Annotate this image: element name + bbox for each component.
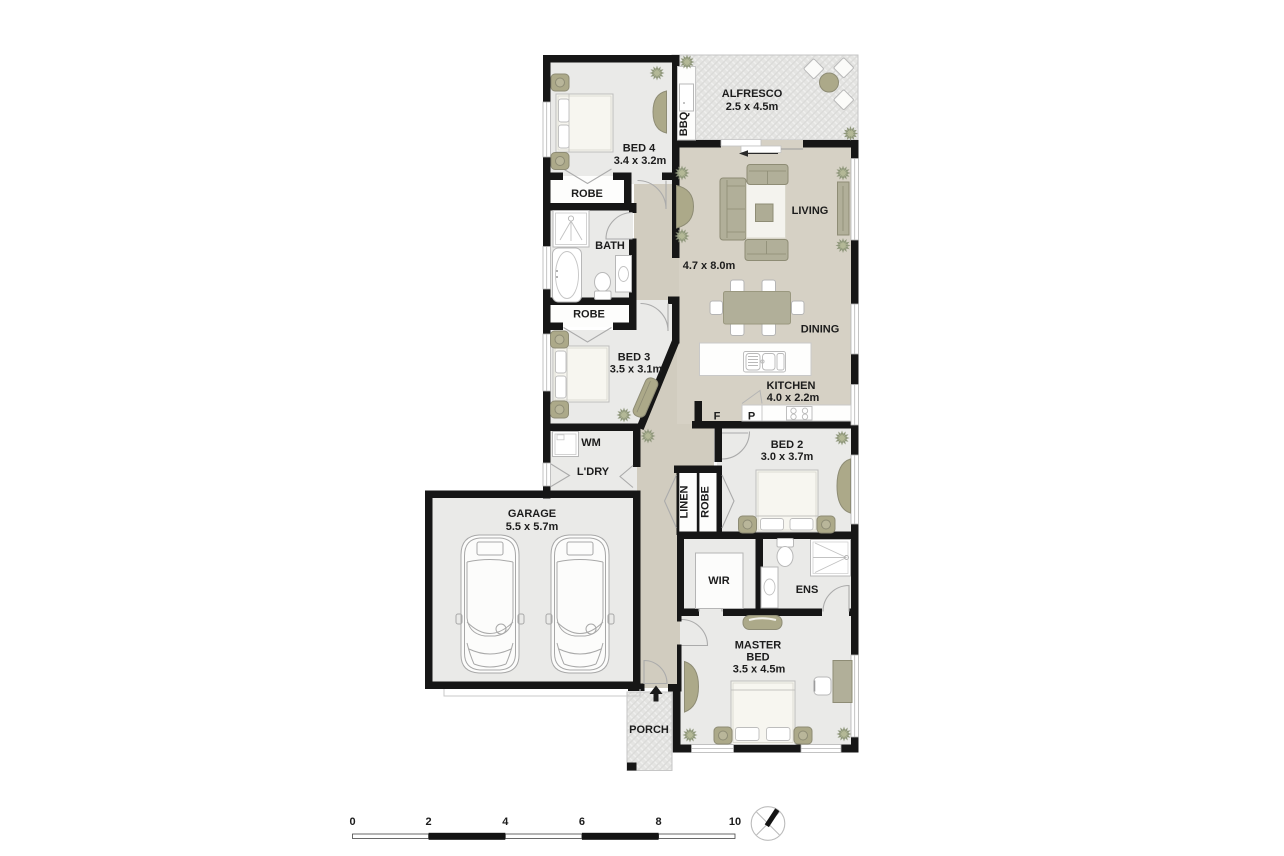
svg-text:PORCH: PORCH bbox=[629, 724, 669, 736]
svg-text:2: 2 bbox=[426, 816, 432, 828]
svg-text:F: F bbox=[714, 411, 721, 423]
svg-text:GARAGE: GARAGE bbox=[508, 508, 556, 520]
svg-text:KITCHEN: KITCHEN bbox=[767, 380, 816, 392]
svg-text:0: 0 bbox=[349, 816, 355, 828]
svg-text:WIR: WIR bbox=[708, 575, 729, 587]
svg-text:10: 10 bbox=[729, 816, 741, 828]
svg-text:4: 4 bbox=[502, 816, 509, 828]
svg-text:LIVING: LIVING bbox=[792, 205, 829, 217]
svg-text:MASTER: MASTER bbox=[735, 640, 782, 652]
svg-text:4.7 x 8.0m: 4.7 x 8.0m bbox=[683, 260, 736, 272]
svg-text:3.5 x 4.5m: 3.5 x 4.5m bbox=[733, 664, 786, 676]
svg-text:5.5 x 5.7m: 5.5 x 5.7m bbox=[506, 521, 559, 533]
svg-text:BED 2: BED 2 bbox=[771, 439, 803, 451]
svg-text:BBQ: BBQ bbox=[678, 111, 690, 136]
svg-text:8: 8 bbox=[656, 816, 662, 828]
svg-text:BED 4: BED 4 bbox=[623, 143, 656, 155]
svg-text:L'DRY: L'DRY bbox=[577, 466, 610, 478]
svg-text:BED: BED bbox=[746, 652, 769, 664]
svg-text:3.0 x 3.7m: 3.0 x 3.7m bbox=[761, 451, 814, 463]
svg-text:LINEN: LINEN bbox=[679, 485, 691, 518]
svg-text:3.4 x 3.2m: 3.4 x 3.2m bbox=[614, 155, 667, 167]
svg-text:6: 6 bbox=[579, 816, 585, 828]
svg-text:WM: WM bbox=[581, 437, 601, 449]
svg-text:ENS: ENS bbox=[796, 584, 819, 596]
svg-text:DINING: DINING bbox=[801, 324, 840, 336]
svg-text:ROBE: ROBE bbox=[573, 309, 605, 321]
svg-text:BED 3: BED 3 bbox=[618, 352, 650, 364]
svg-text:P: P bbox=[748, 411, 755, 423]
svg-text:ROBE: ROBE bbox=[700, 486, 712, 518]
svg-text:4.0 x 2.2m: 4.0 x 2.2m bbox=[767, 392, 820, 404]
svg-text:BATH: BATH bbox=[595, 240, 625, 252]
svg-text:3.5 x 3.1m: 3.5 x 3.1m bbox=[610, 364, 663, 376]
svg-text:ROBE: ROBE bbox=[571, 188, 603, 200]
svg-text:ALFRESCO: ALFRESCO bbox=[722, 88, 783, 100]
svg-text:2.5 x 4.5m: 2.5 x 4.5m bbox=[726, 101, 779, 113]
